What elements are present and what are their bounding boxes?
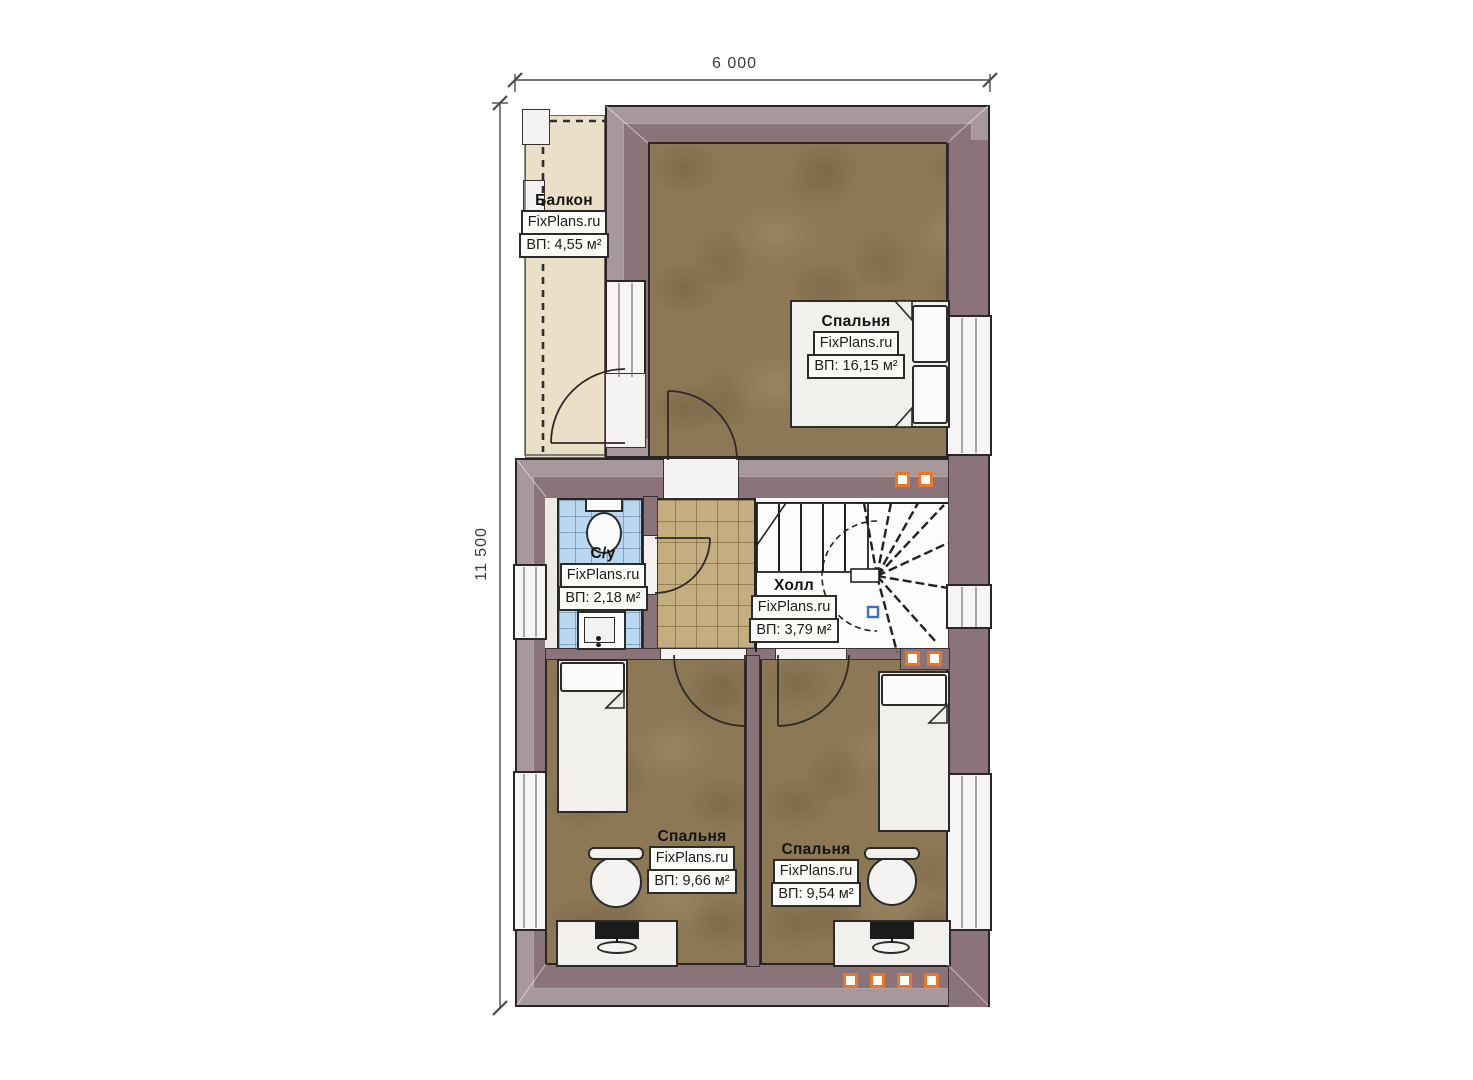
room-label-balcony: Балкон FixPlans.ru ВП: 4,55 м² (505, 192, 623, 258)
pillow (912, 365, 948, 424)
door-opening-bedroom-main (663, 458, 739, 499)
sink-faucet (596, 636, 601, 641)
pillow (560, 662, 625, 692)
dimension-width-label: 6 000 (712, 55, 757, 73)
chair-stool (590, 856, 642, 908)
window-balcony-bedroom (605, 280, 646, 379)
door-opening-bedroom-right (775, 648, 847, 660)
vent-marker (905, 651, 920, 666)
room-label-bedroom-right: Спальня FixPlans.ru ВП: 9,54 м² (760, 841, 872, 907)
room-area-value: ВП: 4,55 м² (519, 233, 608, 258)
toilet-tank (585, 498, 623, 512)
brand-watermark: FixPlans.ru (560, 563, 647, 588)
computer-monitor-icon (870, 922, 914, 939)
room-name-balcony: Балкон (535, 192, 593, 210)
room-area-value: ВП: 3,79 м² (749, 618, 838, 643)
brand-watermark: FixPlans.ru (521, 210, 608, 235)
window-bedroom-right (946, 773, 992, 931)
brand-watermark: FixPlans.ru (649, 846, 736, 871)
door-opening-balcony (605, 373, 646, 448)
chair-stool (867, 856, 917, 906)
room-area-value: ВП: 9,66 м² (647, 869, 736, 894)
balcony-post-top (522, 109, 550, 145)
vent-marker (843, 973, 858, 988)
room-name-bedroom-right: Спальня (781, 841, 850, 859)
brand-watermark: FixPlans.ru (773, 859, 860, 884)
room-label-bedroom-main: Спальня FixPlans.ru ВП: 16,15 м² (795, 313, 917, 379)
window-bedroom-main (946, 315, 992, 456)
door-opening-bedroom-left (660, 648, 747, 660)
room-name-bedroom-left: Спальня (657, 828, 726, 846)
sink-faucet (596, 643, 601, 647)
floor-balcony (525, 115, 605, 458)
floor-plan-canvas: 6 000 11 500 Балкон FixPlans.ru ВП: 4,55… (0, 0, 1473, 1080)
room-name-hall: Холл (774, 577, 814, 595)
room-name-bathroom: С/у (590, 545, 615, 563)
room-area-value: ВП: 16,15 м² (807, 354, 904, 379)
dimension-height-label: 11 500 (473, 527, 491, 581)
keyboard-tray (597, 941, 637, 954)
chair-backrest (864, 847, 920, 860)
room-name-bedroom-main: Спальня (821, 313, 890, 331)
window-bedroom-left (513, 771, 547, 931)
bedrooms-divider-wall (746, 655, 760, 967)
room-label-hall: Холл FixPlans.ru ВП: 3,79 м² (737, 577, 851, 643)
window-bathroom (513, 564, 547, 640)
window-stairwell (946, 584, 992, 629)
room-label-bedroom-left: Спальня FixPlans.ru ВП: 9,66 м² (636, 828, 748, 894)
computer-monitor-icon (595, 922, 639, 939)
pillow (881, 674, 947, 706)
keyboard-tray (872, 941, 910, 954)
pillow (912, 305, 948, 363)
room-area-value: ВП: 2,18 м² (558, 586, 647, 611)
brand-watermark: FixPlans.ru (751, 595, 838, 620)
vent-marker (924, 973, 939, 988)
brand-watermark: FixPlans.ru (813, 331, 900, 356)
room-area-value: ВП: 9,54 м² (771, 882, 860, 907)
vent-marker (918, 472, 933, 487)
vent-marker (870, 973, 885, 988)
vent-marker (895, 472, 910, 487)
vent-marker (897, 973, 912, 988)
room-label-bathroom: С/у FixPlans.ru ВП: 2,18 м² (550, 545, 656, 611)
vent-marker (927, 651, 942, 666)
